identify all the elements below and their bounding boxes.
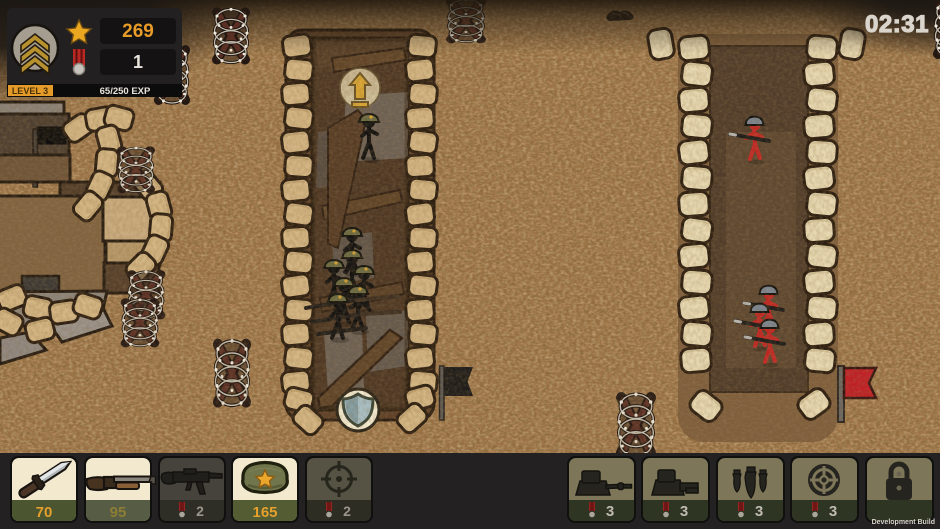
svg-text:3: 3 xyxy=(606,503,614,520)
svg-text:95: 95 xyxy=(110,504,127,521)
svg-text:70: 70 xyxy=(36,504,53,521)
svg-text:165: 165 xyxy=(252,504,277,521)
svg-text:2: 2 xyxy=(196,503,204,519)
svg-text:1: 1 xyxy=(133,52,143,72)
svg-text:3: 3 xyxy=(755,503,763,520)
svg-text:LEVEL 3: LEVEL 3 xyxy=(12,86,48,96)
svg-text:2: 2 xyxy=(343,503,351,519)
svg-text:3: 3 xyxy=(829,503,837,520)
svg-text:02:31: 02:31 xyxy=(865,11,929,38)
svg-text:65/250 EXP: 65/250 EXP xyxy=(100,86,151,97)
svg-text:Development Build: Development Build xyxy=(872,519,935,526)
svg-text:3: 3 xyxy=(680,503,688,520)
svg-text:269: 269 xyxy=(122,21,154,42)
